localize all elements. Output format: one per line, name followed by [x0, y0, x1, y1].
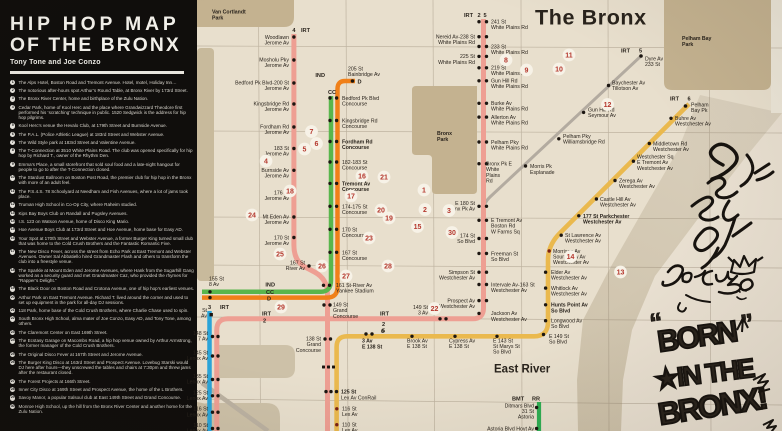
svg-text:So Blvd: So Blvd: [493, 350, 511, 356]
svg-text:The Bronx: The Bronx: [535, 6, 647, 30]
svg-text:12: 12: [604, 102, 612, 109]
svg-text:IRT: IRT: [220, 305, 230, 311]
svg-text:Westchester Av: Westchester Av: [637, 166, 673, 172]
svg-text:Bainbridge Av: Bainbridge Av: [348, 72, 380, 78]
svg-text:Yankee Stadium: Yankee Stadium: [336, 289, 374, 295]
svg-text:28: 28: [384, 264, 392, 271]
svg-text:So Blvd: So Blvd: [551, 324, 569, 330]
svg-text:Westchester Av: Westchester Av: [551, 292, 587, 298]
svg-text:Westchester Av: Westchester Av: [675, 122, 711, 128]
svg-text:Concourse: Concourse: [333, 314, 358, 320]
svg-text:Lenox Av: Lenox Av: [187, 356, 209, 362]
svg-text:Lenox Av: Lenox Av: [187, 412, 209, 418]
svg-text:RR: RR: [532, 397, 540, 403]
svg-text:IRT: IRT: [380, 312, 390, 318]
svg-text:Av: Av: [201, 314, 207, 320]
svg-text:19: 19: [385, 216, 393, 223]
svg-text:20: 20: [377, 208, 385, 215]
svg-text:Astoria: Astoria: [518, 415, 534, 421]
svg-text:Jerome Av: Jerome Av: [265, 196, 290, 202]
svg-text:3: 3: [447, 208, 451, 215]
svg-text:IRT: IRT: [262, 312, 272, 318]
svg-text:Concourse: Concourse: [342, 102, 367, 108]
svg-text:16: 16: [358, 174, 366, 181]
svg-text:Tillotson Av: Tillotson Av: [612, 86, 639, 92]
svg-text:30: 30: [448, 230, 456, 237]
svg-text:7: 7: [310, 129, 314, 136]
svg-text:Concourse: Concourse: [342, 256, 367, 262]
svg-text:3 Av: 3 Av: [418, 311, 428, 317]
svg-text:Lenox Av: Lenox Av: [187, 396, 209, 402]
svg-text:8: 8: [504, 58, 508, 65]
svg-text:White Plains Rd: White Plains Rd: [438, 40, 475, 46]
svg-text:Jerome Av: Jerome Av: [265, 86, 290, 92]
svg-text:IRT: IRT: [621, 49, 631, 55]
svg-text:W Farms Sq: W Farms Sq: [491, 229, 520, 235]
svg-text:White Plains Rd: White Plains Rd: [491, 146, 528, 152]
svg-text:Jerome Av: Jerome Av: [265, 130, 290, 136]
svg-text:21: 21: [380, 175, 388, 182]
svg-text:1: 1: [422, 188, 426, 195]
svg-text:IND: IND: [265, 283, 275, 289]
svg-text:14: 14: [567, 254, 575, 261]
svg-text:18: 18: [286, 189, 294, 196]
svg-text:17: 17: [347, 194, 355, 201]
svg-text:White Plains Rd: White Plains Rd: [491, 84, 528, 90]
svg-text:IRT: IRT: [301, 28, 311, 34]
svg-text:White Plains Rd: White Plains Rd: [491, 121, 528, 127]
svg-text:Esplanade: Esplanade: [530, 170, 555, 176]
svg-text:22: 22: [431, 306, 439, 313]
svg-text:Jerome Av: Jerome Av: [265, 41, 290, 47]
svg-text:Westchester Av: Westchester Av: [583, 220, 622, 226]
svg-text:Park: Park: [212, 16, 223, 22]
svg-text:25: 25: [276, 252, 284, 259]
svg-text:Westchester Av: Westchester Av: [439, 276, 475, 282]
svg-text:2: 2: [478, 13, 481, 19]
svg-text:So Blvd: So Blvd: [457, 239, 475, 245]
svg-text:Jerome Av: Jerome Av: [265, 174, 290, 180]
svg-text:E 138 St: E 138 St: [362, 345, 382, 351]
svg-text:Westchester Av: Westchester Av: [565, 239, 601, 245]
svg-text:Lenox Av: Lenox Av: [187, 380, 209, 386]
svg-text:Park: Park: [682, 42, 693, 48]
svg-text:3: 3: [208, 305, 211, 311]
svg-text:11: 11: [565, 53, 573, 60]
svg-text:Concourse: Concourse: [342, 210, 367, 216]
svg-text:BMT: BMT: [512, 397, 525, 403]
svg-text:Seymour Av: Seymour Av: [588, 113, 616, 119]
svg-text:Concourse: Concourse: [342, 145, 369, 151]
svg-text:233 St: 233 St: [645, 62, 661, 68]
svg-text:Park: Park: [437, 137, 448, 143]
svg-text:IRT: IRT: [464, 13, 474, 19]
svg-text:Lex Av: Lex Av: [342, 412, 358, 418]
svg-text:White Plains Rd: White Plains Rd: [491, 107, 528, 113]
svg-text:Lex Av ConRail: Lex Av ConRail: [341, 396, 376, 402]
svg-text:125 St: 125 St: [341, 389, 357, 395]
svg-text:River Av: River Av: [286, 266, 306, 272]
svg-text:Westchester Av: Westchester Av: [551, 276, 587, 282]
svg-text:3 Av: 3 Av: [362, 338, 373, 344]
svg-text:Jerome Av: Jerome Av: [265, 63, 290, 69]
svg-text:24: 24: [248, 213, 256, 220]
svg-text:Jerome Av: Jerome Av: [265, 107, 290, 113]
svg-text:IND: IND: [315, 73, 325, 79]
svg-text:D: D: [358, 80, 362, 86]
svg-text:So Blvd: So Blvd: [491, 257, 509, 263]
svg-text:Jerome Av: Jerome Av: [265, 241, 290, 247]
svg-text:Westchester Av: Westchester Av: [600, 203, 636, 209]
svg-text:White Plains Rd: White Plains Rd: [491, 25, 528, 31]
svg-text:13: 13: [617, 270, 625, 277]
svg-text:26: 26: [318, 264, 326, 271]
svg-text:Rd: Rd: [486, 179, 493, 185]
svg-text:Westchester Av: Westchester Av: [491, 288, 527, 294]
svg-text:4: 4: [264, 159, 268, 166]
svg-text:2: 2: [382, 322, 385, 328]
svg-text:Westchester Av: Westchester Av: [653, 147, 689, 153]
svg-text:23: 23: [365, 236, 373, 243]
svg-text:CC: CC: [266, 290, 274, 296]
svg-text:2: 2: [423, 207, 427, 214]
svg-text:15: 15: [414, 224, 422, 231]
svg-text:6: 6: [315, 141, 319, 148]
svg-text:2: 2: [263, 319, 266, 325]
svg-text:5: 5: [484, 13, 487, 19]
svg-text:8 Av: 8 Av: [209, 282, 219, 288]
svg-text:5: 5: [639, 49, 642, 55]
svg-text:D: D: [267, 296, 271, 302]
svg-text:E 138 St: E 138 St: [407, 344, 427, 350]
svg-text:Williamsbridge Rd: Williamsbridge Rd: [563, 140, 605, 146]
svg-text:Concourse: Concourse: [296, 348, 321, 354]
svg-text:CC: CC: [328, 90, 336, 96]
svg-text:E 138 St: E 138 St: [449, 344, 469, 350]
svg-text:IRT: IRT: [670, 97, 680, 103]
svg-text:27: 27: [342, 274, 350, 281]
svg-text:Westchester Av: Westchester Av: [491, 317, 527, 323]
svg-text:Westchester Av: Westchester Av: [619, 184, 655, 190]
svg-text:10: 10: [555, 67, 563, 74]
svg-text:29: 29: [277, 305, 285, 312]
svg-text:East River: East River: [494, 364, 551, 376]
svg-text:So Blvd: So Blvd: [549, 340, 567, 346]
svg-text:Concourse: Concourse: [342, 124, 367, 130]
svg-text:9: 9: [525, 68, 529, 75]
svg-text:Westchester Av: Westchester Av: [439, 304, 475, 310]
svg-text:7 Av: 7 Av: [198, 337, 208, 343]
svg-text:So Blvd: So Blvd: [551, 308, 570, 314]
svg-text:6: 6: [381, 329, 384, 335]
svg-text:Bay Pk: Bay Pk: [691, 108, 708, 114]
svg-text:Jerome Av: Jerome Av: [265, 220, 290, 226]
svg-text:5: 5: [303, 147, 307, 154]
svg-text:Astoria Blvd Hoyt Av: Astoria Blvd Hoyt Av: [487, 426, 534, 431]
svg-text:White Plains Rd: White Plains Rd: [438, 60, 475, 66]
